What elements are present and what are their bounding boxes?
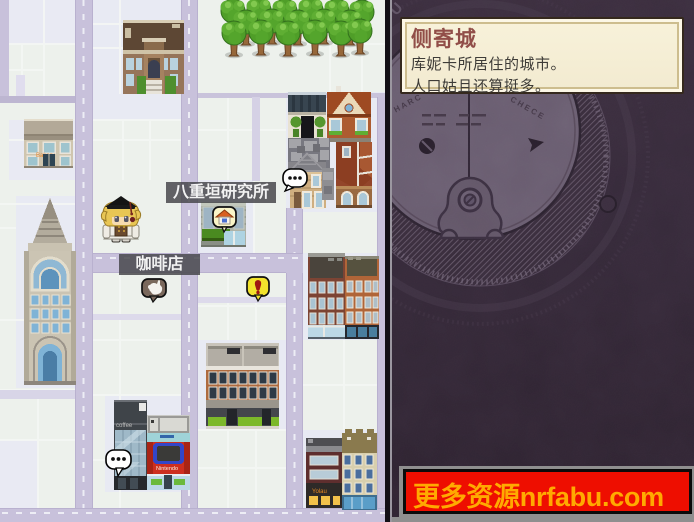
svg-text:Nintendo: Nintendo	[156, 466, 178, 472]
svg-text:coffee: coffee	[116, 423, 133, 429]
svg-text:Yolau: Yolau	[312, 489, 327, 495]
